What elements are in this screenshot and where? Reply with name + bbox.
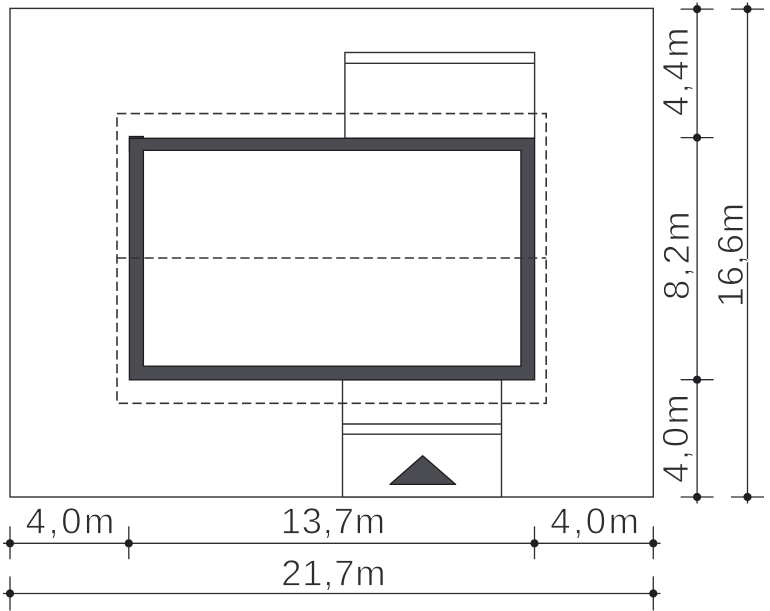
svg-text:4,0m: 4,0m [655, 392, 696, 483]
svg-text:21,7m: 21,7m [281, 552, 386, 593]
svg-text:4,0m: 4,0m [26, 501, 117, 542]
svg-text:4,4m: 4,4m [655, 25, 696, 116]
svg-text:4,0m: 4,0m [550, 501, 641, 542]
svg-text:13,7m: 13,7m [281, 501, 386, 542]
svg-text:8,2m: 8,2m [656, 209, 697, 300]
svg-text:16,6m: 16,6m [710, 202, 751, 307]
